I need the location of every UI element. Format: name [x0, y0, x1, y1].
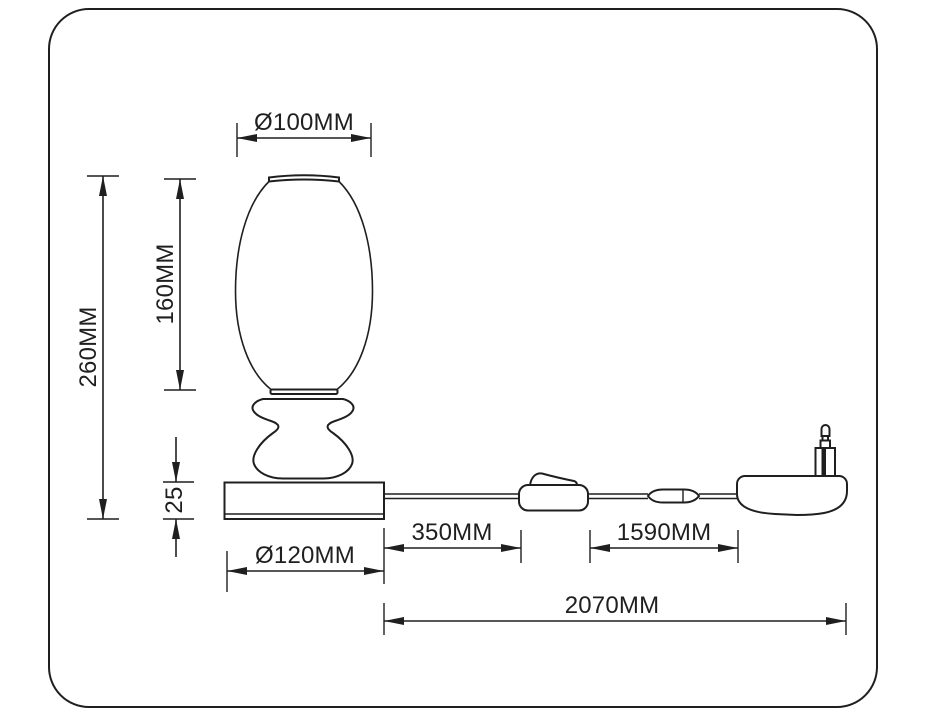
drawing-border	[49, 9, 877, 707]
switch-body	[519, 485, 588, 511]
shade-bottom-rim	[271, 390, 338, 395]
dim-label-base-height: 25	[161, 486, 188, 513]
plug-body	[737, 476, 847, 515]
dim-label-base-to-switch: 350MM	[411, 519, 492, 546]
technical-drawing: Ø100MM 160MM 260MM 25 Ø120MM	[0, 0, 925, 720]
dim-label-switch-to-plug: 1590MM	[617, 519, 712, 546]
connector-body	[648, 490, 699, 503]
plug-pin-tip	[822, 425, 830, 436]
dim-label-total-cord: 2070MM	[565, 592, 660, 619]
cord-connector	[648, 490, 699, 503]
dim-label-shade-diameter: Ø100MM	[254, 109, 354, 136]
dim-label-shade-height: 160MM	[152, 243, 179, 324]
drawing-page: Ø100MM 160MM 260MM 25 Ø120MM	[0, 0, 925, 720]
lamp-stem	[252, 399, 353, 479]
dim-label-base-diameter: Ø120MM	[255, 542, 355, 569]
plug-pin-shaft-stripe	[822, 449, 826, 476]
dim-label-total-height: 260MM	[75, 306, 102, 387]
